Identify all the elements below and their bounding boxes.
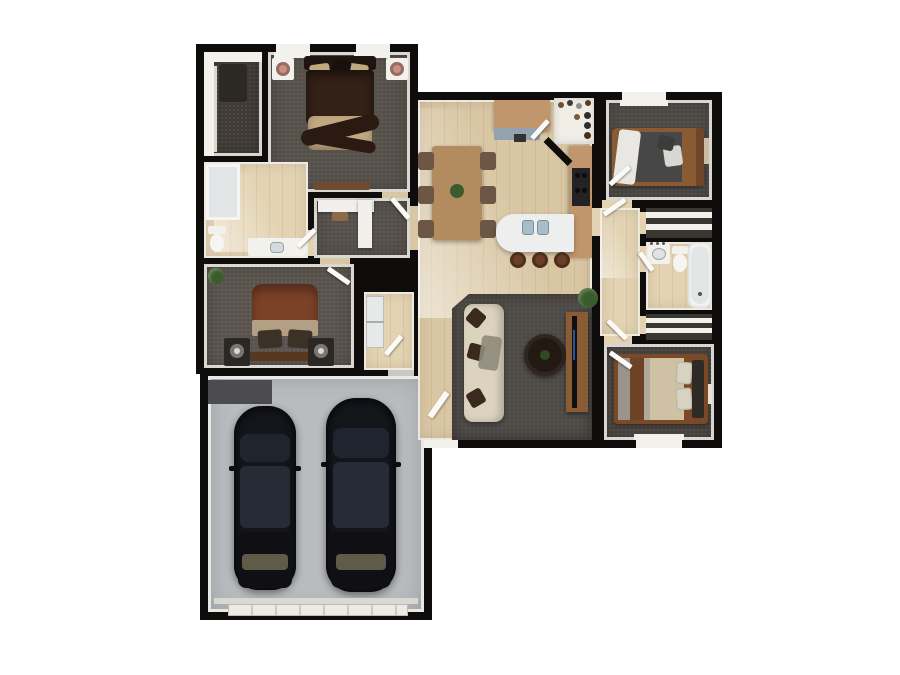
car-left (234, 406, 296, 590)
pantry (554, 98, 594, 144)
living-room-rug (452, 294, 592, 440)
car-rear-glass (240, 434, 290, 462)
dining-chair (418, 220, 434, 238)
closet-rod (214, 66, 217, 152)
table-plant-icon (540, 350, 550, 360)
lamp-icon (230, 344, 244, 358)
lamp-icon (314, 344, 328, 358)
bedroom4-window (636, 440, 682, 448)
laundry (364, 292, 414, 370)
faucet-icon (662, 242, 665, 245)
walk-in-closet (204, 52, 262, 156)
bed-headboard (696, 128, 704, 186)
wall-art (708, 384, 712, 404)
burner-icon (582, 188, 587, 193)
toilet-icon (673, 254, 687, 272)
shower (206, 164, 240, 220)
bed-pillow (257, 329, 282, 349)
drain-icon (698, 292, 702, 296)
desk-return (358, 200, 372, 248)
master-window-left (276, 44, 310, 52)
car-roof (333, 462, 389, 528)
bar-stool (510, 252, 526, 268)
pantry-jar-icon (584, 132, 591, 139)
bathroom-2 (646, 242, 712, 310)
bar-stool (532, 252, 548, 268)
sink-icon (652, 248, 666, 260)
lamp-icon (390, 62, 404, 76)
pantry-jar-icon (584, 112, 591, 119)
car-mirror (393, 462, 401, 467)
closet-shelf-top (204, 52, 262, 62)
opening-dining-west (410, 206, 418, 250)
toilet-tank (208, 226, 226, 234)
desk-chair (332, 212, 348, 221)
kitchen-island (496, 214, 574, 252)
opening-laundry-garage (388, 370, 414, 376)
opening-closet-bottom (640, 316, 646, 334)
bar-stool (554, 252, 570, 268)
burner-icon (575, 188, 580, 193)
sink-basin-icon (522, 220, 534, 235)
burner-icon (582, 173, 587, 178)
pantry-jar-icon (576, 103, 582, 109)
floor-plan (0, 0, 900, 675)
closet-shelf (646, 318, 712, 323)
pantry-jar-icon (558, 102, 564, 108)
floor-plant-icon (578, 288, 598, 308)
opening-master-hall (382, 192, 408, 198)
closet-shelf (646, 224, 712, 230)
car-mirror (229, 466, 237, 471)
bed-stripe-brown (630, 358, 644, 420)
bedroom-3 (606, 100, 712, 200)
bed-pillow (675, 387, 692, 410)
closet-shelf (646, 328, 712, 333)
lamp-icon (276, 62, 290, 76)
bed-pillow-dark (692, 360, 704, 418)
toilet-icon (210, 234, 224, 252)
faucet-icon (656, 242, 659, 245)
bed-pillow (675, 361, 692, 384)
front-door-opening (424, 440, 458, 448)
closet-shelf-left (204, 52, 214, 156)
opening-closet-top (640, 212, 646, 234)
dining-chair (480, 220, 496, 238)
master-window-right (356, 44, 390, 52)
stove (572, 168, 590, 206)
tv-console (566, 312, 588, 412)
closet-shelf (646, 212, 712, 218)
dining-chair (418, 152, 434, 170)
master-bathroom (204, 162, 308, 258)
garage (208, 376, 424, 612)
pantry-jar-icon (567, 100, 573, 106)
car-mirror (321, 462, 329, 467)
dining-chair (418, 186, 434, 204)
opening-bedroom2 (320, 258, 350, 264)
opening-kitchen-hall (592, 208, 600, 236)
garage-mat (208, 380, 272, 404)
car-right (326, 398, 396, 592)
bedroom3-window (622, 92, 666, 100)
bed-pillow-dark (657, 134, 676, 151)
window-sill (620, 100, 668, 106)
hallway (600, 208, 640, 336)
small-appliance (514, 134, 526, 142)
pantry-jar-icon (574, 114, 580, 120)
sink-basin-icon (537, 220, 549, 235)
bathtub (688, 242, 712, 308)
garage-door (228, 604, 408, 616)
dining-chair (480, 152, 496, 170)
car-mirror (293, 466, 301, 471)
car-windshield (336, 554, 386, 570)
centerpiece-plant-icon (450, 184, 464, 198)
plant-icon (208, 268, 224, 284)
tv-glint (573, 330, 575, 360)
hanging-clothes (219, 64, 247, 102)
faucet-icon (650, 242, 653, 245)
appliance-divider (366, 321, 384, 323)
car-rear-glass (333, 428, 389, 458)
sink-icon (270, 242, 284, 253)
burner-icon (575, 173, 580, 178)
wall-art (704, 138, 709, 164)
bedroom-2 (204, 264, 354, 368)
dining-chair (480, 186, 496, 204)
car-windshield (242, 554, 288, 570)
linen-closet-bottom (646, 314, 712, 340)
linen-closet-top (646, 208, 712, 238)
toilet-tank (672, 246, 688, 254)
car-roof (240, 466, 290, 528)
pantry-jar-icon (584, 122, 591, 129)
dresser (314, 182, 370, 190)
pantry-jar-icon (585, 100, 591, 106)
